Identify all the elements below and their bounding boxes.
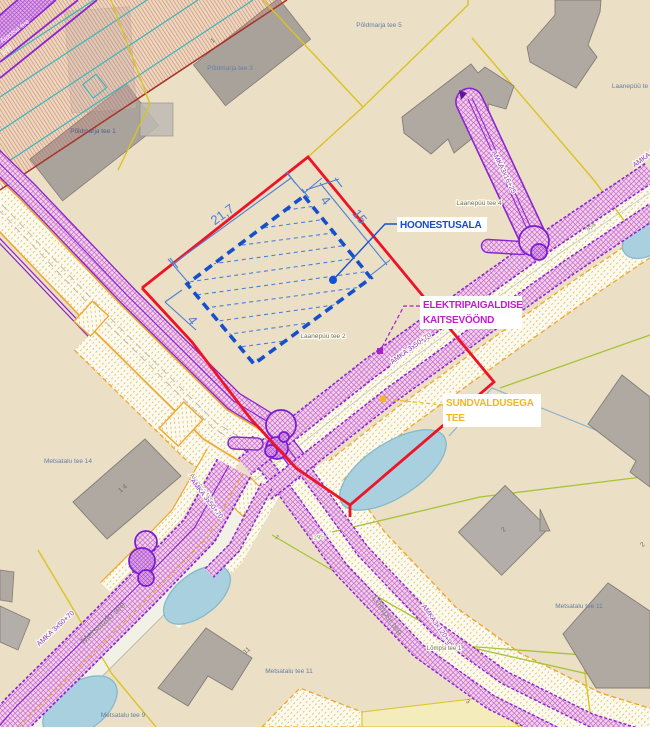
svg-text:Laanepüü tee 2: Laanepüü tee 2 [300, 333, 346, 340]
svg-text:Metsatalu tee 14: Metsatalu tee 14 [44, 458, 92, 465]
svg-text:KAITSEVÖÖND: KAITSEVÖÖND [423, 313, 494, 326]
svg-text:Põldmarja tee 3: Põldmarja tee 3 [207, 65, 253, 72]
svg-text:SUNDVALDUSEGA: SUNDVALDUSEGA [446, 398, 534, 409]
svg-text:Metsatalu tee 9: Metsatalu tee 9 [101, 712, 146, 719]
svg-text:TEE: TEE [446, 413, 465, 424]
svg-text:Laanepüü te: Laanepüü te [612, 83, 649, 90]
svg-text:Põldmarja tee 1: Põldmarja tee 1 [70, 128, 116, 135]
svg-text:Laanepüü tee 4: Laanepüü tee 4 [456, 200, 502, 207]
svg-text:Põldmarja tee 5: Põldmarja tee 5 [356, 22, 402, 29]
svg-text:Metsatalu tee 11: Metsatalu tee 11 [555, 603, 603, 610]
svg-text:HOONESTUSALA: HOONESTUSALA [400, 220, 482, 231]
svg-text:Metsatalu tee 11: Metsatalu tee 11 [265, 668, 313, 675]
svg-text:Lõmpsi tee 1: Lõmpsi tee 1 [427, 646, 462, 652]
svg-text:ELEKTRIPAIGALDISE: ELEKTRIPAIGALDISE [423, 300, 523, 311]
